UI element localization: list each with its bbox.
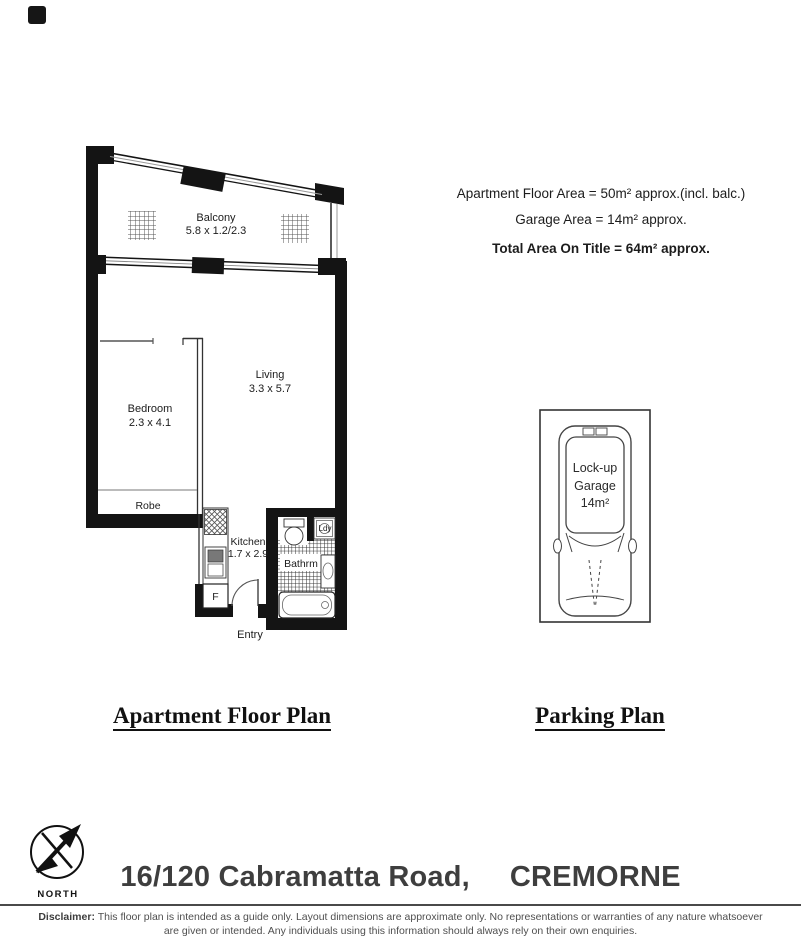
- balcony-top-railing: [110, 153, 337, 260]
- parking-plan-caption: Parking Plan: [470, 703, 730, 729]
- disclaimer-text1: This floor plan is intended as a guide o…: [98, 911, 763, 923]
- bathroom-label: Bathrm: [284, 558, 318, 570]
- parking-plan-caption-text: Parking Plan: [535, 703, 665, 731]
- garage-label-line1: Lock-up: [573, 461, 618, 475]
- entry-label: Entry: [237, 629, 263, 641]
- divider-line: [0, 904, 801, 906]
- toilet: [284, 519, 304, 545]
- disclaimer-label: Disclaimer:: [38, 911, 95, 923]
- kitchen-sink: [205, 510, 227, 535]
- laundry-label: Ldy: [319, 524, 332, 533]
- apartment-floor-plan: Balcony 5.8 x 1.2/2.3 Bedroom 2.3 x 4.1 …: [86, 146, 347, 641]
- robe-label: Robe: [135, 500, 160, 512]
- garage-area-text: Garage Area = 14m² approx.: [440, 212, 762, 227]
- living-dims: 3.3 x 5.7: [249, 383, 291, 395]
- apartment-floor-plan-caption-text: Apartment Floor Plan: [113, 703, 331, 731]
- entry-door: [232, 579, 258, 606]
- address: 16/120 Cabramatta Road, CREMORNE: [0, 861, 801, 894]
- garage-label-line2: Garage: [574, 479, 616, 493]
- car-outline: [554, 426, 637, 616]
- apartment-area-text: Apartment Floor Area = 50m² approx.(incl…: [440, 186, 762, 201]
- apartment-floor-plan-caption: Apartment Floor Plan: [94, 703, 350, 729]
- vanity: [321, 555, 335, 588]
- address-street: 16/120 Cabramatta Road,: [120, 861, 470, 894]
- area-summary: Apartment Floor Area = 50m² approx.(incl…: [440, 186, 762, 267]
- balcony-planter-left: [128, 211, 156, 240]
- bedroom-label: Bedroom: [128, 403, 173, 415]
- balcony-dims: 5.8 x 1.2/2.3: [186, 225, 247, 237]
- balcony-window-wall: [96, 255, 346, 275]
- address-suburb: CREMORNE: [510, 861, 681, 894]
- garage-area-label: 14m²: [581, 496, 609, 510]
- balcony-label: Balcony: [196, 212, 236, 224]
- kitchen-label: Kitchen: [230, 536, 265, 548]
- living-label: Living: [256, 369, 285, 381]
- disclaimer-line1: Disclaimer: This floor plan is intended …: [10, 910, 791, 924]
- fridge-label: F: [212, 591, 218, 603]
- balcony-planter-right: [281, 214, 309, 243]
- floor-plan-document: Balcony 5.8 x 1.2/2.3 Bedroom 2.3 x 4.1 …: [0, 0, 801, 943]
- bathtub: [279, 592, 335, 618]
- disclaimer: Disclaimer: This floor plan is intended …: [10, 910, 791, 938]
- plan-drawing: Balcony 5.8 x 1.2/2.3 Bedroom 2.3 x 4.1 …: [0, 0, 801, 943]
- interior-walls: [98, 338, 203, 584]
- disclaimer-line2: are given or intended. Any individuals u…: [10, 924, 791, 938]
- bedroom-dims: 2.3 x 4.1: [129, 417, 171, 429]
- corner-mark: [28, 6, 46, 24]
- total-area-text: Total Area On Title = 64m² approx.: [440, 241, 762, 256]
- parking-plan: Lock-up Garage 14m²: [540, 410, 650, 622]
- kitchen-dims: 1.7 x 2.9: [228, 548, 268, 560]
